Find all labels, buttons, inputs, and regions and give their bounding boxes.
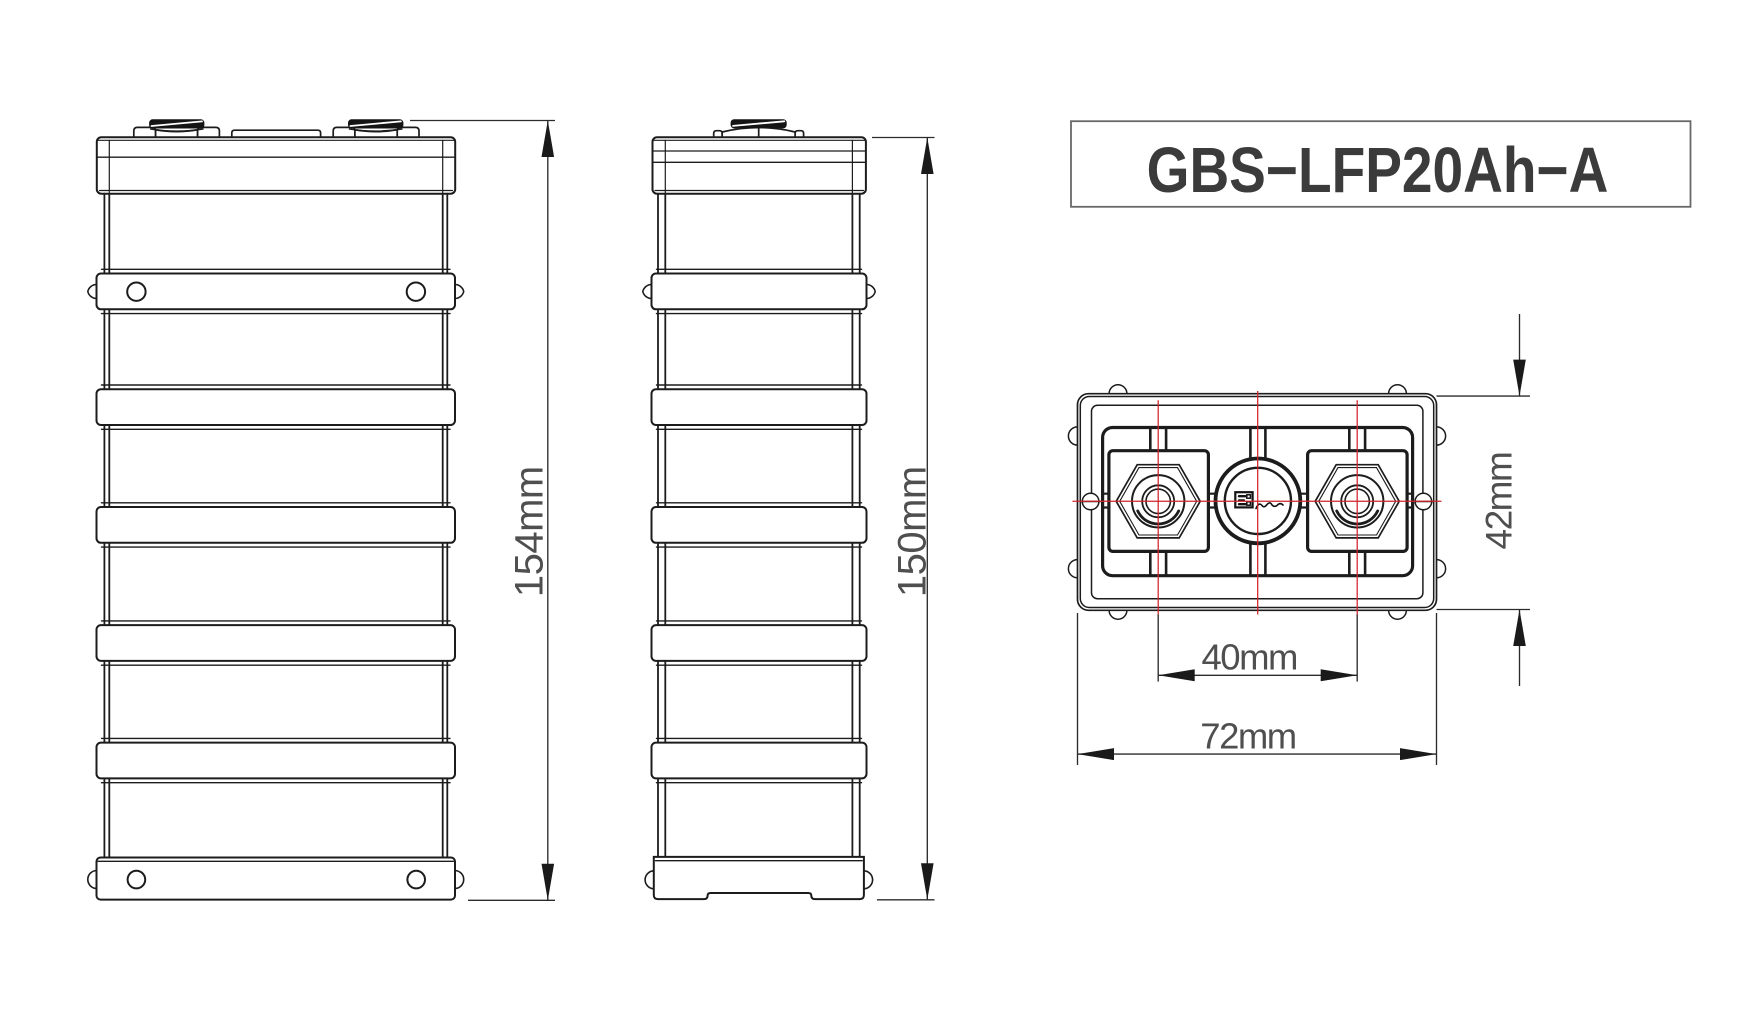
svg-text:150mm: 150mm [890, 466, 934, 597]
svg-text:40mm: 40mm [1201, 637, 1296, 678]
svg-text:72mm: 72mm [1200, 716, 1295, 757]
svg-text:154mm: 154mm [508, 466, 552, 597]
svg-text:GBS−LFP20Ah−A: GBS−LFP20Ah−A [1147, 134, 1609, 206]
svg-text:42mm: 42mm [1479, 453, 1520, 550]
